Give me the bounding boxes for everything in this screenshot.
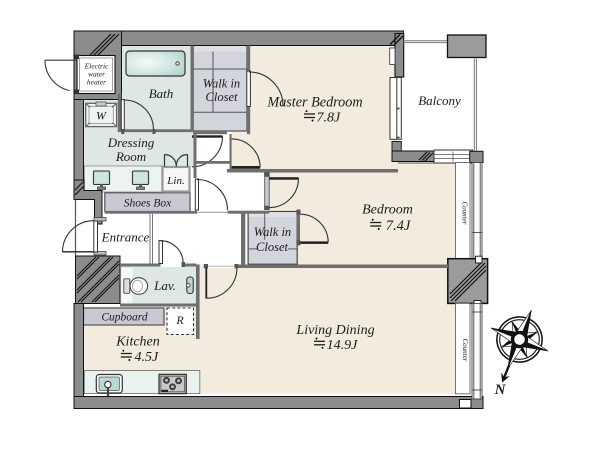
svg-text:heater: heater (87, 78, 106, 87)
svg-text:N: N (494, 382, 507, 398)
svg-text:7.4J: 7.4J (386, 218, 411, 234)
svg-text:7.8J: 7.8J (316, 111, 341, 126)
svg-text:Walk in: Walk in (254, 225, 291, 239)
svg-text:14.9J: 14.9J (327, 338, 359, 353)
svg-text:Living Dining: Living Dining (295, 323, 374, 338)
svg-text:Counter: Counter (461, 202, 469, 225)
svg-text:Cupboard: Cupboard (101, 312, 147, 324)
svg-text:Dressing: Dressing (107, 135, 155, 150)
svg-text:Kitchen: Kitchen (115, 335, 160, 350)
svg-text:Walk in: Walk in (203, 77, 240, 91)
svg-text:Closet: Closet (256, 240, 288, 254)
svg-text:Counter: Counter (461, 339, 469, 362)
svg-text:Shoes Box: Shoes Box (124, 198, 172, 210)
svg-text:Balcony: Balcony (418, 93, 461, 108)
svg-text:W: W (96, 109, 107, 123)
svg-text:Bedroom: Bedroom (362, 203, 413, 218)
svg-text:Entrance: Entrance (101, 230, 150, 245)
svg-text:4.5J: 4.5J (135, 350, 160, 365)
svg-text:Room: Room (115, 149, 146, 164)
svg-text:Master Bedroom: Master Bedroom (266, 95, 362, 111)
svg-text:Lav.: Lav. (153, 278, 176, 293)
svg-text:R: R (175, 313, 184, 327)
svg-text:Bath: Bath (149, 86, 174, 101)
svg-text:Closet: Closet (206, 90, 238, 104)
svg-text:Lin.: Lin. (166, 175, 184, 187)
